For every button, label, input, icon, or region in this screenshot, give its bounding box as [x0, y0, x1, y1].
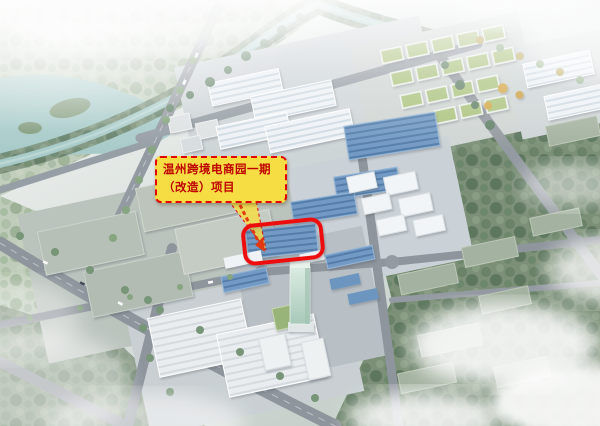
project-callout-line2: （改造）项目 [163, 179, 281, 197]
project-callout-line1: 温州跨境电商园一期 [163, 161, 281, 179]
project-callout: 温州跨境电商园一期 （改造）项目 [155, 156, 287, 203]
rendering-canvas [0, 0, 600, 426]
clouds [0, 0, 600, 426]
aerial-site-rendering: 温州跨境电商园一期 （改造）项目 [0, 0, 600, 426]
